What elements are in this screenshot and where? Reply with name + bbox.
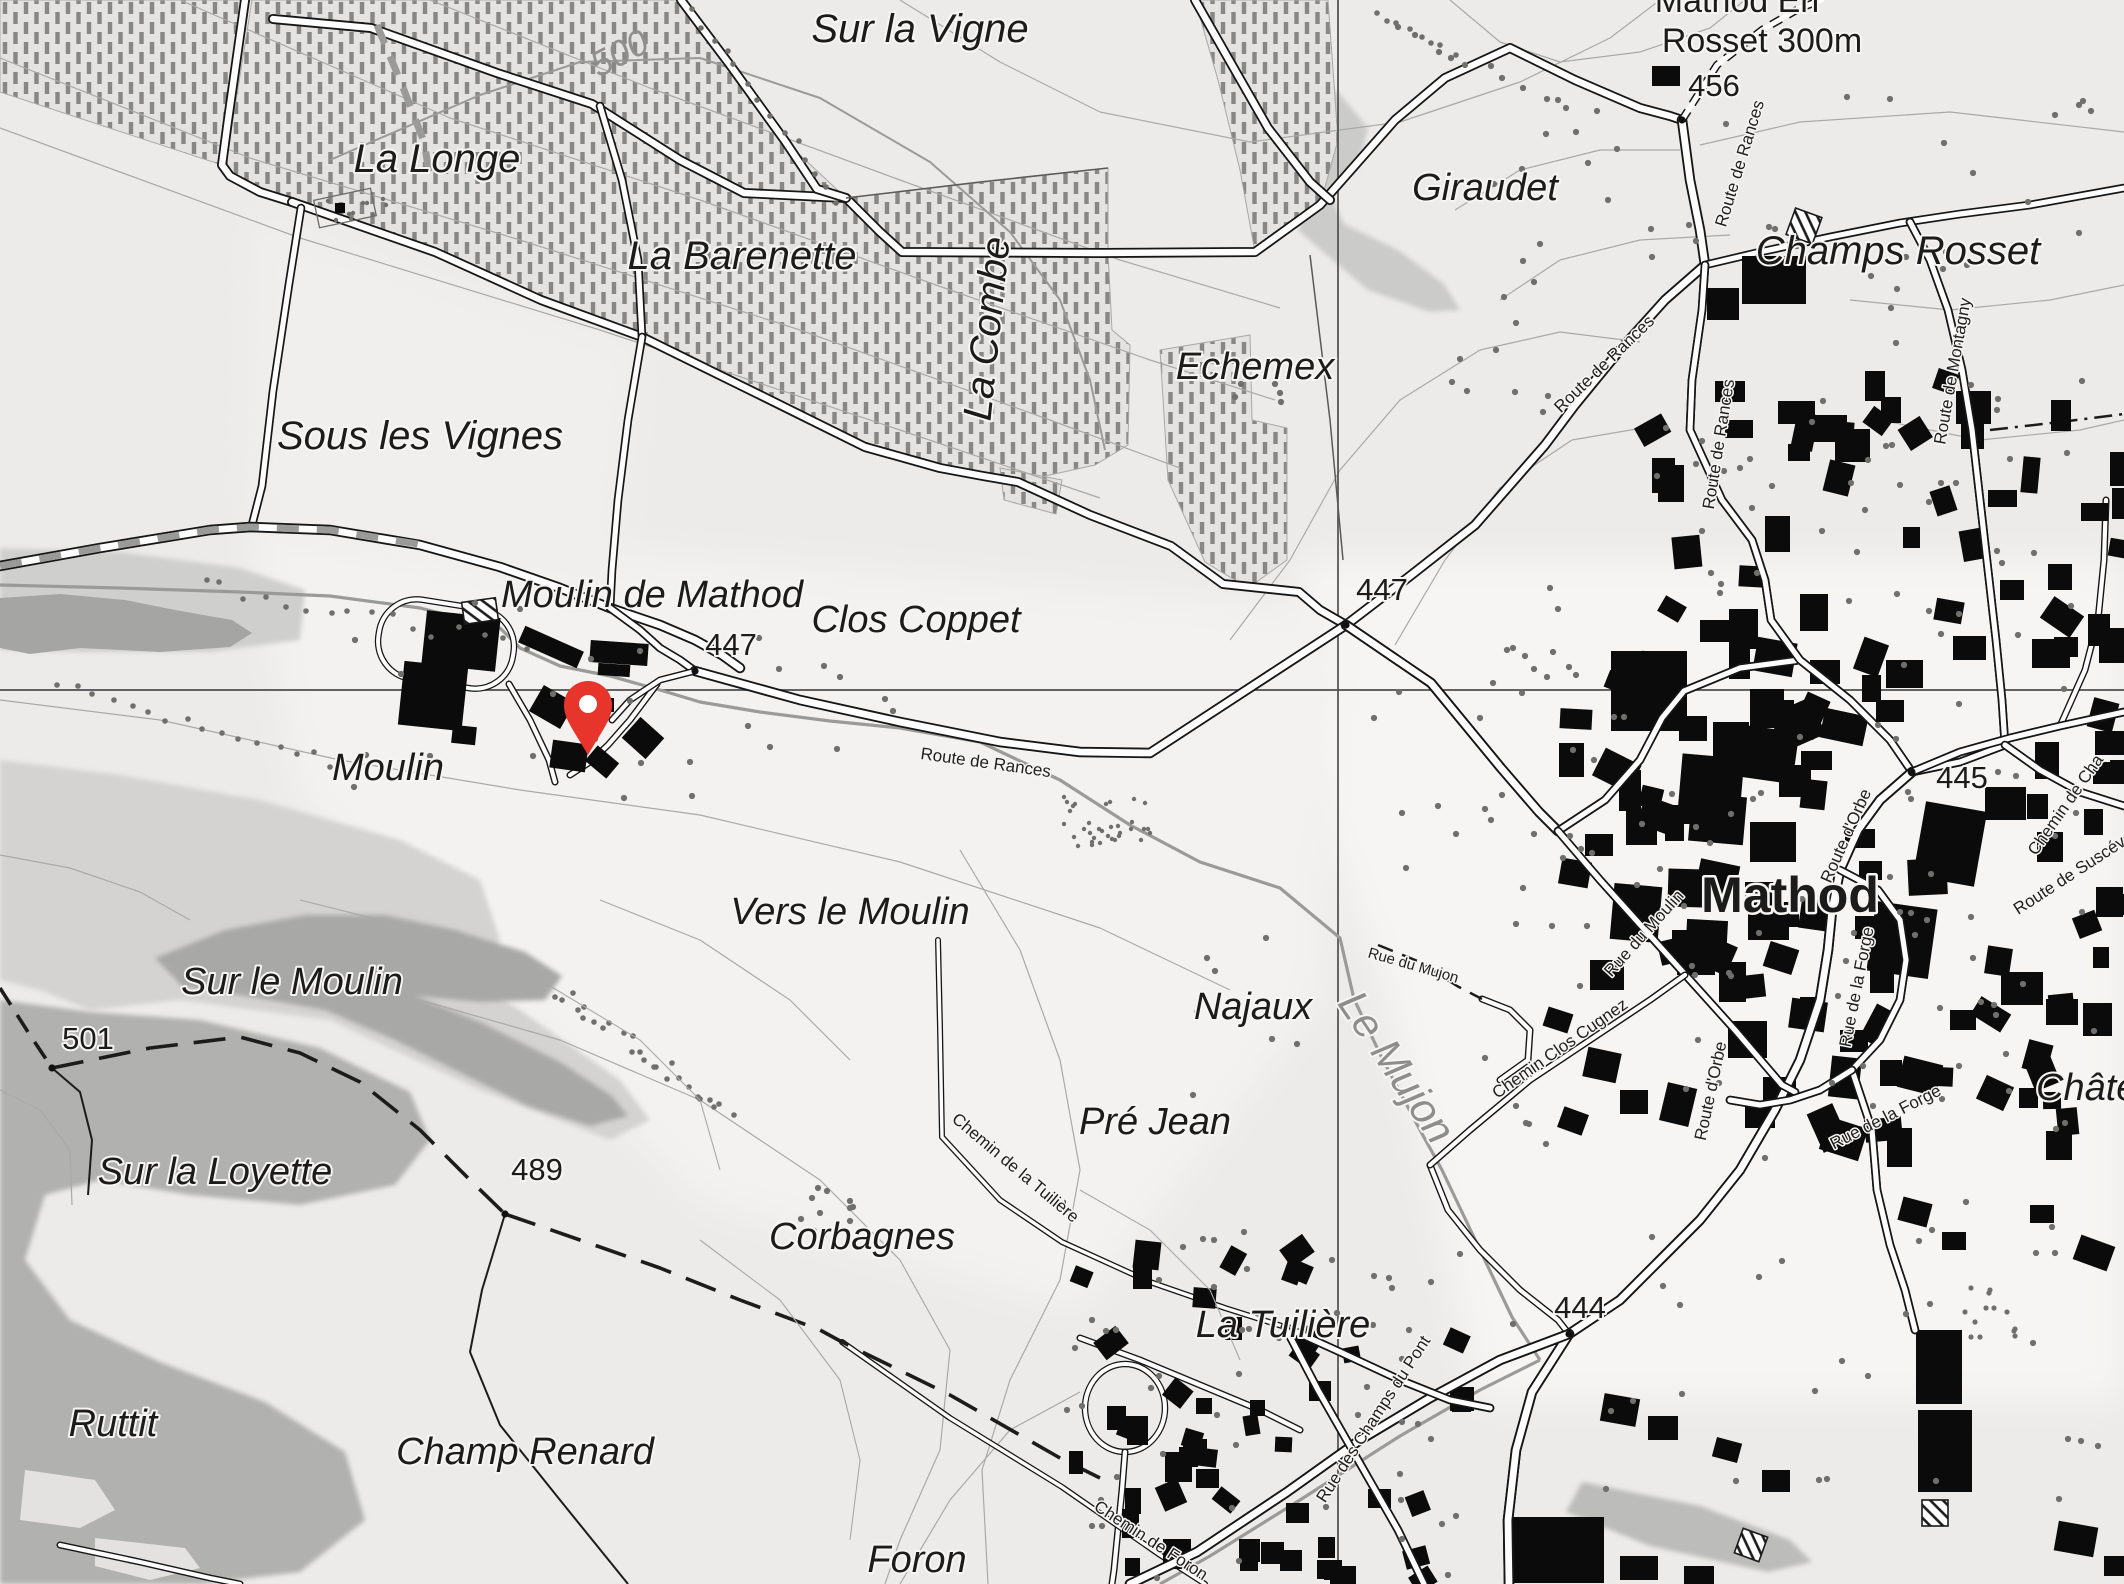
- svg-text:447: 447: [705, 627, 757, 662]
- svg-text:445: 445: [1936, 760, 1988, 795]
- svg-text:Champ Renard: Champ Renard: [396, 1431, 656, 1473]
- svg-text:La Tuilière: La Tuilière: [1196, 1304, 1371, 1346]
- svg-text:Châtea: Châtea: [2036, 1067, 2124, 1109]
- svg-text:Foron: Foron: [867, 1539, 966, 1581]
- svg-text:Champs Rosset: Champs Rosset: [1756, 229, 2042, 273]
- svg-text:Najaux: Najaux: [1194, 986, 1314, 1028]
- svg-text:Rosset 300m: Rosset 300m: [1662, 22, 1862, 60]
- svg-text:Corbagnes: Corbagnes: [769, 1216, 955, 1258]
- svg-text:501: 501: [62, 1021, 114, 1056]
- svg-text:489: 489: [511, 1152, 563, 1187]
- svg-text:Sous les Vignes: Sous les Vignes: [277, 414, 563, 458]
- svg-text:Giraudet: Giraudet: [1412, 167, 1559, 209]
- svg-text:Moulin de Mathod: Moulin de Mathod: [501, 574, 805, 616]
- svg-text:447: 447: [1356, 572, 1408, 607]
- svg-text:Mathod En: Mathod En: [1655, 0, 1819, 20]
- svg-text:La Barenette: La Barenette: [627, 234, 856, 278]
- svg-text:444: 444: [1554, 1290, 1606, 1325]
- svg-text:Pré Jean: Pré Jean: [1079, 1101, 1231, 1143]
- svg-text:Vers le Moulin: Vers le Moulin: [730, 891, 969, 933]
- svg-text:Sur la Loyette: Sur la Loyette: [98, 1151, 332, 1193]
- svg-text:Sur la Vigne: Sur la Vigne: [811, 7, 1028, 51]
- svg-text:Ruttit: Ruttit: [69, 1403, 159, 1445]
- svg-text:Clos Coppet: Clos Coppet: [811, 599, 1022, 641]
- svg-text:La Longe: La Longe: [354, 137, 521, 181]
- svg-text:Mathod: Mathod: [1701, 867, 1879, 923]
- svg-text:456: 456: [1688, 68, 1740, 103]
- svg-text:Echemex: Echemex: [1176, 346, 1336, 388]
- svg-text:Sur le Moulin: Sur le Moulin: [181, 961, 403, 1003]
- svg-text:Moulin: Moulin: [332, 747, 444, 789]
